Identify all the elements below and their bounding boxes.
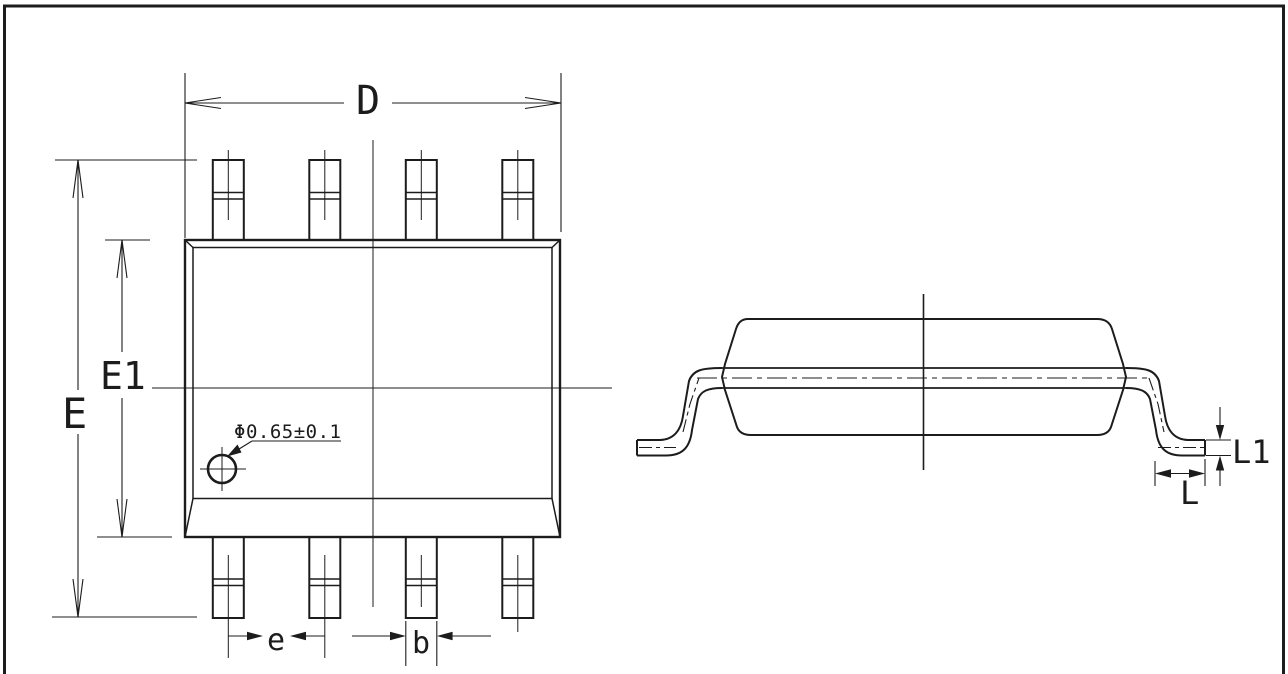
dim-label-E: E xyxy=(62,389,87,438)
pin1-marker xyxy=(200,441,341,491)
package-outline-drawing: D E E1 xyxy=(0,0,1288,674)
dim-label-b: b xyxy=(412,626,430,661)
dim-label-e: e xyxy=(267,623,285,658)
dim-label-D: D xyxy=(356,78,380,124)
top-view: D E E1 xyxy=(52,73,612,666)
pin xyxy=(309,537,340,658)
dim-label-E1: E1 xyxy=(100,354,146,398)
pin xyxy=(406,150,437,240)
dimension-L1 xyxy=(1206,407,1231,486)
pin xyxy=(406,537,437,618)
drawing-border xyxy=(5,6,1284,674)
side-view: L1 L xyxy=(637,294,1271,512)
pin xyxy=(213,537,244,658)
pin xyxy=(502,150,533,240)
pin xyxy=(502,537,533,632)
left-lead xyxy=(637,368,722,456)
drawing-canvas: D E E1 xyxy=(0,0,1288,674)
dim-label-L: L xyxy=(1180,474,1199,512)
pin1-marker-label: Φ0.65±0.1 xyxy=(234,421,341,443)
dim-label-L1: L1 xyxy=(1232,433,1271,471)
pin xyxy=(213,150,244,240)
pin xyxy=(309,150,340,240)
right-lead xyxy=(1126,368,1205,456)
